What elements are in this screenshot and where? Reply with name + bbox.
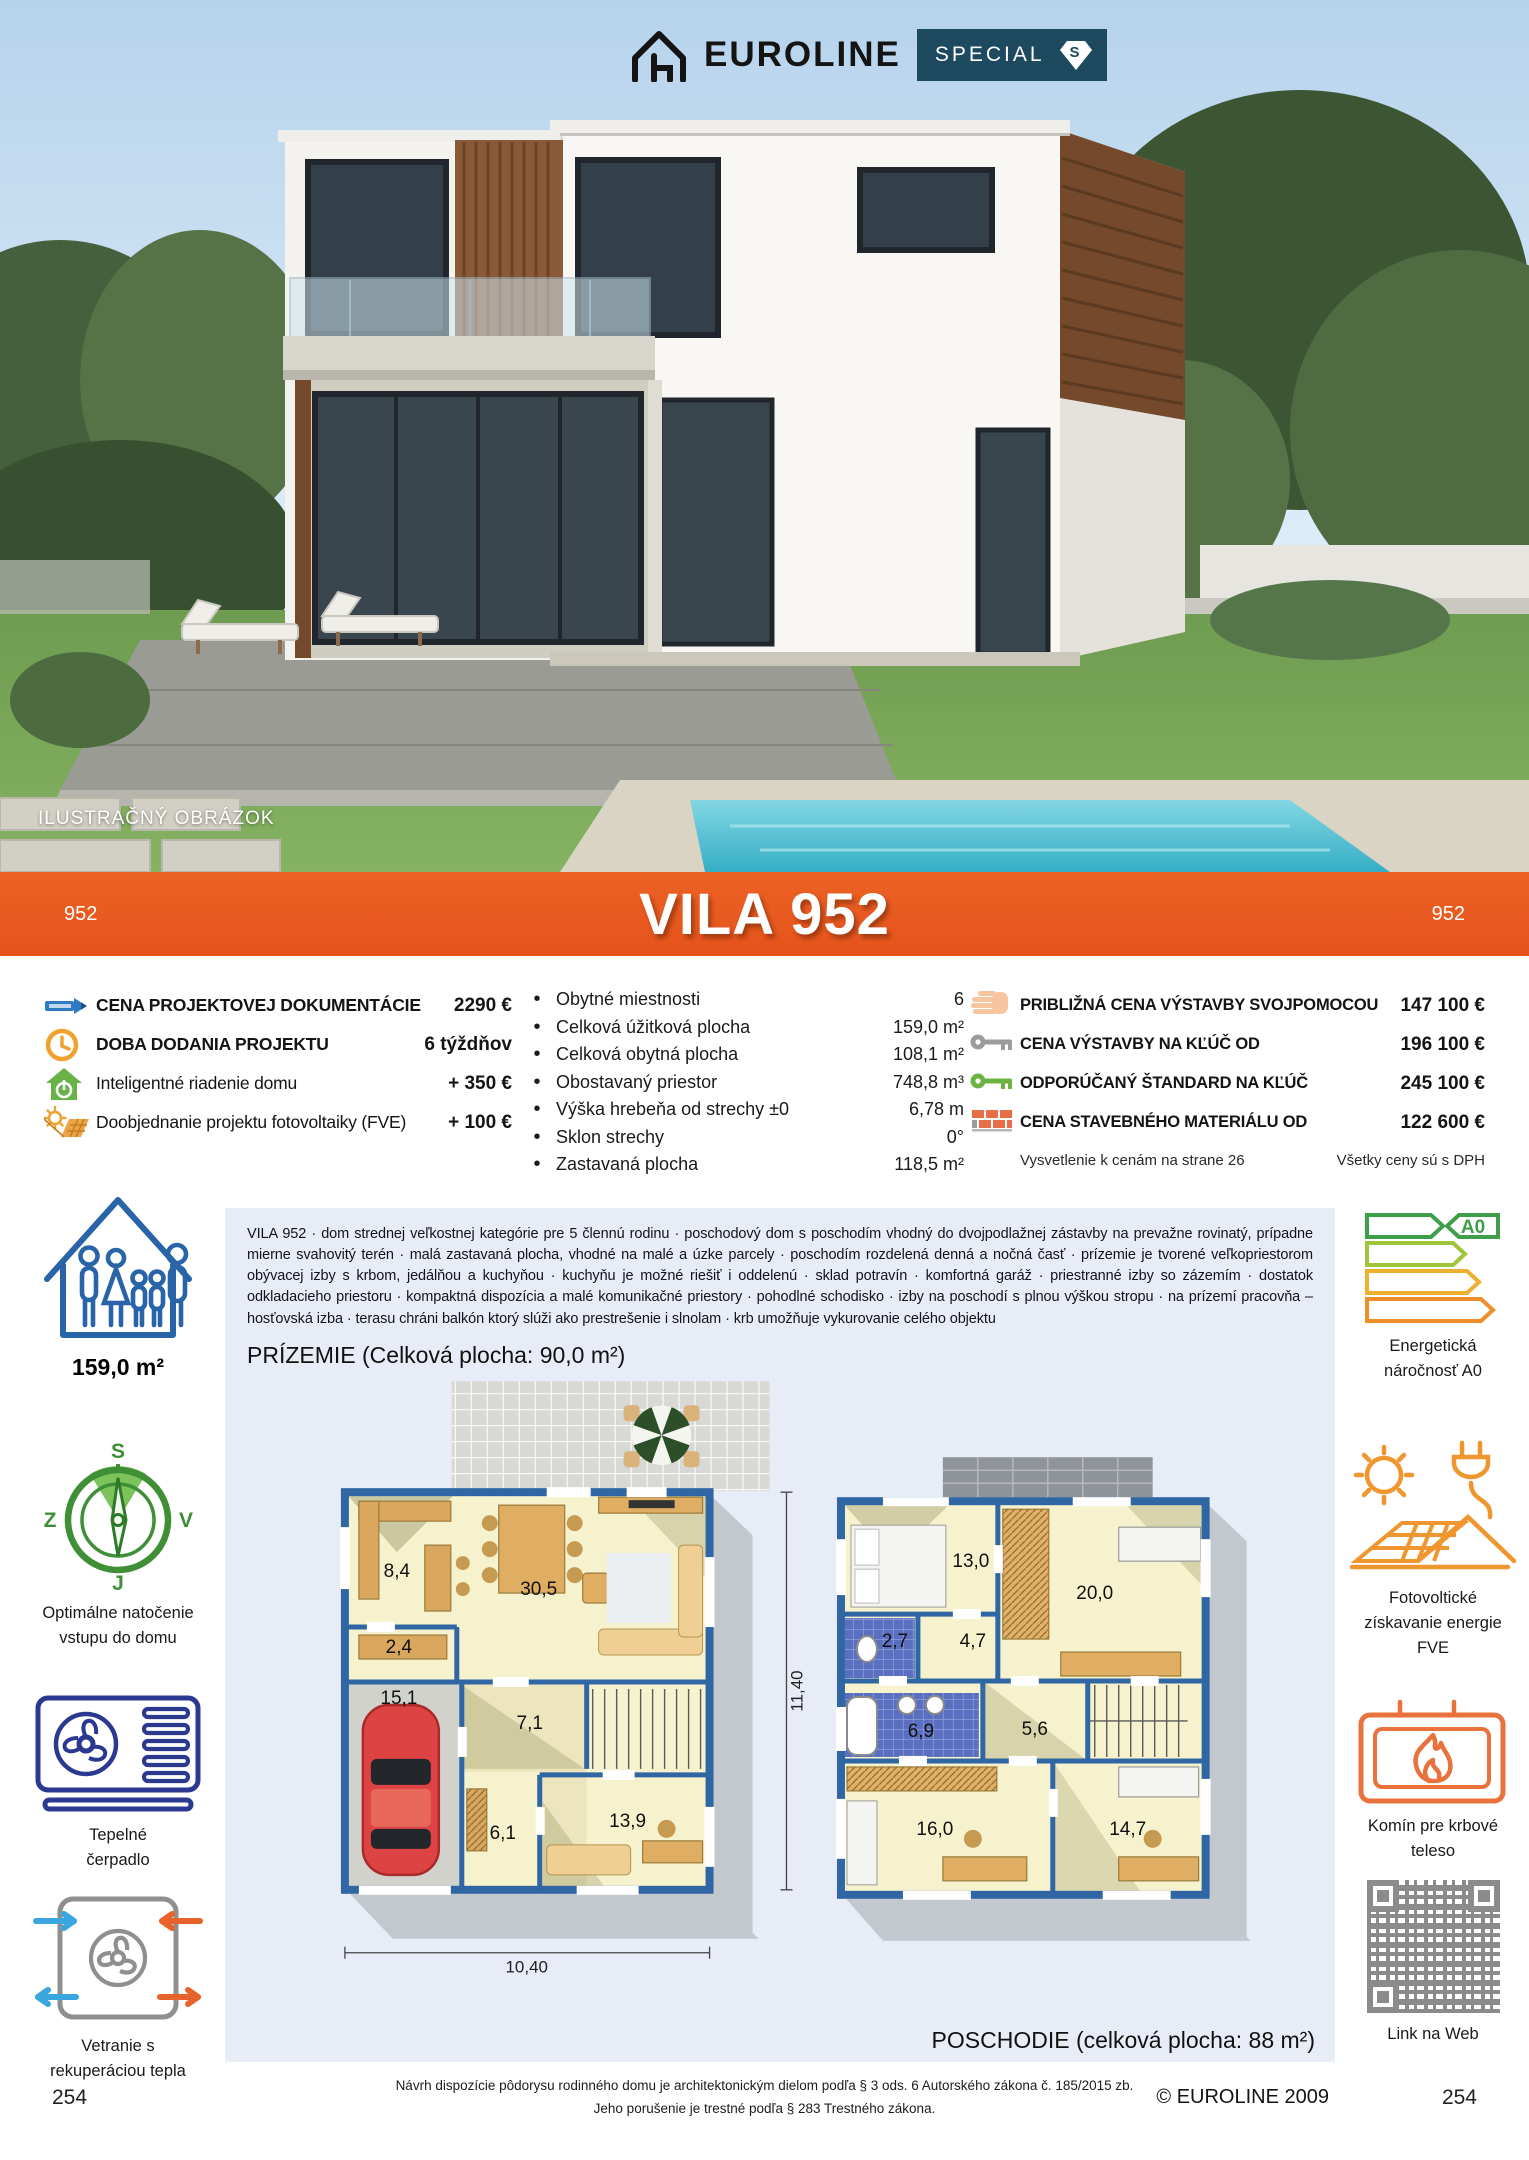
svg-text:6,9: 6,9 [908, 1721, 934, 1742]
price-notes: Vysvetlenie k cenám na strane 26 Všetky … [970, 1142, 1485, 1169]
key-gray-icon [970, 1032, 1020, 1057]
spec-label: Celková obytná plocha [556, 1044, 738, 1065]
feature-web-link[interactable]: Link na Web [1337, 1880, 1529, 2047]
info-value: 2290 € [454, 995, 512, 1017]
spec-value: 6,78 m [909, 1099, 964, 1120]
smart-home-icon [44, 1066, 96, 1102]
bullet-icon: • [518, 1071, 556, 1094]
price-label: CENA VÝSTAVBY NA KĽÚČ OD [1020, 1035, 1260, 1054]
photovoltaic-icon [1348, 1437, 1518, 1577]
info-value: + 350 € [448, 1073, 512, 1095]
svg-text:16,0: 16,0 [917, 1819, 954, 1840]
svg-text:13,9: 13,9 [609, 1811, 646, 1832]
spec-value: 6 [954, 989, 964, 1010]
info-row: Inteligentné riadenie domu + 350 € [44, 1064, 512, 1103]
qr-finder-icon [1468, 1880, 1500, 1912]
price-value: 122 600 € [1400, 1112, 1485, 1134]
price-value: 196 100 € [1400, 1034, 1485, 1056]
feature-compass: S V J Z Optimálne natočenie vstupu do do… [22, 1442, 214, 1651]
copyright: © EUROLINE 2009 [1156, 2086, 1329, 2109]
spec-value: 108,1 m² [893, 1044, 964, 1065]
bullet-icon: • [518, 1098, 556, 1121]
price-row: CENA VÝSTAVBY NA KĽÚČ OD 196 100 € [970, 1025, 1485, 1064]
spec-label: Zastavaná plocha [556, 1154, 698, 1175]
spec-row: •Zastavaná plocha118,5 m² [518, 1151, 964, 1179]
area-label: 159,0 m² [72, 1350, 164, 1385]
svg-text:4,7: 4,7 [960, 1631, 986, 1652]
car-icon [363, 1705, 439, 1875]
heat-pump-label: Tepelné čerpadlo [86, 1823, 149, 1873]
info-row: CENA PROJEKTOVEJ DOKUMENTÁCIE 2290 € [44, 986, 512, 1025]
ground-floor-heading: PRÍZEMIE (Celková plocha: 90,0 m²) [247, 1342, 1313, 1369]
family-house-icon [42, 1183, 194, 1341]
spec-label: Sklon strechy [556, 1127, 664, 1148]
page-number-right: 254 [1442, 2086, 1477, 2110]
info-label: DOBA DODANIA PROJEKTU [96, 1034, 424, 1055]
svg-text:13,0: 13,0 [953, 1551, 990, 1572]
floor-plans: 8,4 30,5 2,4 15,1 7,1 6,1 13,9 10,40 11,… [247, 1377, 1313, 1977]
ventilation-icon [32, 1893, 204, 2025]
spec-value: 118,5 m² [894, 1154, 964, 1175]
spec-label: Výška hrebeňa od strechy ±0 [556, 1099, 789, 1120]
bricks-icon [970, 1108, 1020, 1137]
page-number-left: 254 [52, 2086, 87, 2110]
spec-row: •Celková úžitková plocha159,0 m² [518, 1014, 964, 1042]
bullet-icon: • [518, 1043, 556, 1066]
svg-text:8,4: 8,4 [384, 1561, 410, 1582]
feature-energy-rating: A0 Energetická náročnosť A0 [1337, 1213, 1529, 1384]
spec-row: •Obytné miestnosti6 [518, 986, 964, 1014]
bullet-icon: • [518, 988, 556, 1011]
svg-text:7,1: 7,1 [517, 1713, 543, 1734]
svg-text:2,4: 2,4 [386, 1637, 412, 1658]
qr-finder-icon [1367, 1880, 1399, 1912]
build-price-column: PRIBLIŽNÁ CENA VÝSTAVBY SVOJPOMOCOU 147 … [970, 986, 1485, 1170]
bullet-icon: • [518, 1016, 556, 1039]
parasol-icon [624, 1405, 700, 1467]
qr-code[interactable] [1367, 1880, 1500, 2013]
spec-row: •Obostavaný priestor748,8 m³ [518, 1069, 964, 1097]
heat-pump-icon [32, 1694, 204, 1814]
price-row: PRIBLIŽNÁ CENA VÝSTAVBY SVOJPOMOCOU 147 … [970, 986, 1485, 1025]
special-badge: SPECIAL S [917, 29, 1107, 81]
feature-photovoltaic: Fotovoltické získavanie energie FVE [1337, 1437, 1529, 1660]
svg-text:2,7: 2,7 [882, 1631, 908, 1652]
house-illustration [0, 0, 1529, 872]
title-banner: 952 VILA 952 952 [0, 872, 1529, 956]
svg-text:30,5: 30,5 [520, 1579, 557, 1600]
upper-floor-heading: POSCHODIE (celková plocha: 88 m²) [932, 2027, 1315, 2054]
svg-text:15,1: 15,1 [380, 1688, 417, 1709]
feature-area: 159,0 m² [22, 1183, 214, 1385]
bullet-icon: • [518, 1126, 556, 1149]
spec-row: •Výška hrebeňa od strechy ±06,78 m [518, 1096, 964, 1124]
special-s-icon: S [1059, 38, 1093, 72]
svg-text:11,40: 11,40 [787, 1670, 806, 1711]
spec-label: Obytné miestnosti [556, 989, 700, 1010]
price-note-left: Vysvetlenie k cenám na strane 26 [1020, 1152, 1245, 1169]
info-value: + 100 € [448, 1112, 512, 1134]
catalog-page: ILUSTRAČNÝ OBRÁZOK EUROLINE SPECIAL S 95… [0, 0, 1529, 2160]
ground-floor-plan: 8,4 30,5 2,4 15,1 7,1 6,1 13,9 10,40 11,… [247, 1377, 811, 1977]
photo-caption: ILUSTRAČNÝ OBRÁZOK [38, 808, 275, 830]
spec-value: 748,8 m³ [893, 1072, 964, 1093]
house-photo: ILUSTRAČNÝ OBRÁZOK EUROLINE SPECIAL S [0, 0, 1529, 872]
price-value: 147 100 € [1400, 995, 1485, 1017]
svg-text:Z: Z [44, 1509, 57, 1532]
special-badge-label: SPECIAL [935, 43, 1045, 67]
brand-logo: EUROLINE SPECIAL S [630, 28, 1107, 82]
page-title: VILA 952 [0, 881, 1529, 948]
svg-text:S: S [111, 1442, 125, 1463]
project-price-column: CENA PROJEKTOVEJ DOKUMENTÁCIE 2290 € DOB… [44, 986, 512, 1170]
compass-icon: S V J Z [42, 1442, 194, 1592]
price-note-right: Všetky ceny sú s DPH [1337, 1152, 1485, 1169]
energy-rating-label: Energetická náročnosť A0 [1384, 1334, 1482, 1384]
price-value: 245 100 € [1400, 1073, 1485, 1095]
price-row: CENA STAVEBNÉHO MATERIÁLU OD 122 600 € [970, 1103, 1485, 1142]
price-label: CENA STAVEBNÉHO MATERIÁLU OD [1020, 1113, 1307, 1132]
svg-text:J: J [112, 1572, 124, 1592]
euroline-house-icon [630, 28, 688, 82]
pencil-icon [44, 996, 96, 1016]
qr-label: Link na Web [1387, 2022, 1478, 2047]
energy-rating-icon: A0 [1365, 1213, 1501, 1325]
info-row: Doobjednanie projektu fotovoltaiky (FVE)… [44, 1103, 512, 1142]
spec-label: Celková úžitková plocha [556, 1017, 750, 1038]
feature-heat-pump: Tepelné čerpadlo [22, 1694, 214, 1873]
spec-value: 0° [947, 1127, 964, 1148]
key-green-icon [970, 1071, 1020, 1096]
svg-text:20,0: 20,0 [1077, 1583, 1114, 1604]
svg-text:6,1: 6,1 [490, 1823, 516, 1844]
price-label: ODPORÚČANÝ ŠTANDARD NA KĽÚČ [1020, 1074, 1308, 1093]
info-label: CENA PROJEKTOVEJ DOKUMENTÁCIE [96, 995, 454, 1016]
svg-text:14,7: 14,7 [1110, 1819, 1147, 1840]
svg-text:5,6: 5,6 [1022, 1719, 1048, 1740]
house-description: VILA 952 · dom strednej veľkostnej kateg… [247, 1224, 1313, 1330]
svg-text:A0: A0 [1461, 1217, 1485, 1238]
clock-icon [44, 1027, 96, 1063]
specs-column: •Obytné miestnosti6 •Celková úžitková pl… [512, 986, 964, 1170]
svg-text:10,40: 10,40 [506, 1958, 548, 1977]
spec-value: 159,0 m² [893, 1017, 964, 1038]
info-label: Doobjednanie projektu fotovoltaiky (FVE) [96, 1112, 448, 1133]
ventilation-label: Vetranie s rekuperáciou tepla [50, 2034, 186, 2084]
feature-fireplace: Komín pre krbové teleso [1337, 1699, 1529, 1864]
main-panel: VILA 952 · dom strednej veľkostnej kateg… [225, 1208, 1335, 2062]
brand-name: EUROLINE [704, 35, 901, 75]
info-row: DOBA DODANIA PROJEKTU 6 týždňov [44, 1025, 512, 1064]
info-label: Inteligentné riadenie domu [96, 1073, 448, 1094]
solar-addon-icon [44, 1106, 96, 1140]
feature-ventilation: Vetranie s rekuperáciou tepla [22, 1893, 214, 2084]
info-value: 6 týždňov [424, 1034, 512, 1056]
spec-row: •Sklon strechy0° [518, 1124, 964, 1152]
fireplace-icon [1353, 1699, 1513, 1805]
price-row: ODPORÚČANÝ ŠTANDARD NA KĽÚČ 245 100 € [970, 1064, 1485, 1103]
bullet-icon: • [518, 1153, 556, 1176]
photovoltaic-label: Fotovoltické získavanie energie FVE [1364, 1586, 1502, 1660]
fireplace-label: Komín pre krbové teleso [1368, 1814, 1498, 1864]
hand-icon [970, 990, 1020, 1021]
svg-text:V: V [179, 1509, 193, 1532]
svg-text:S: S [1069, 44, 1082, 61]
qr-finder-icon [1367, 1981, 1399, 2013]
spec-row: •Celková obytná plocha108,1 m² [518, 1041, 964, 1069]
info-section: CENA PROJEKTOVEJ DOKUMENTÁCIE 2290 € DOB… [0, 956, 1529, 1170]
compass-label: Optimálne natočenie vstupu do domu [42, 1601, 193, 1651]
upper-floor-plan: 13,0 20,0 2,7 4,7 6,9 5,6 16,0 14,7 [823, 1449, 1313, 1954]
price-label: PRIBLIŽNÁ CENA VÝSTAVBY SVOJPOMOCOU [1020, 996, 1378, 1015]
spec-label: Obostavaný priestor [556, 1072, 717, 1093]
